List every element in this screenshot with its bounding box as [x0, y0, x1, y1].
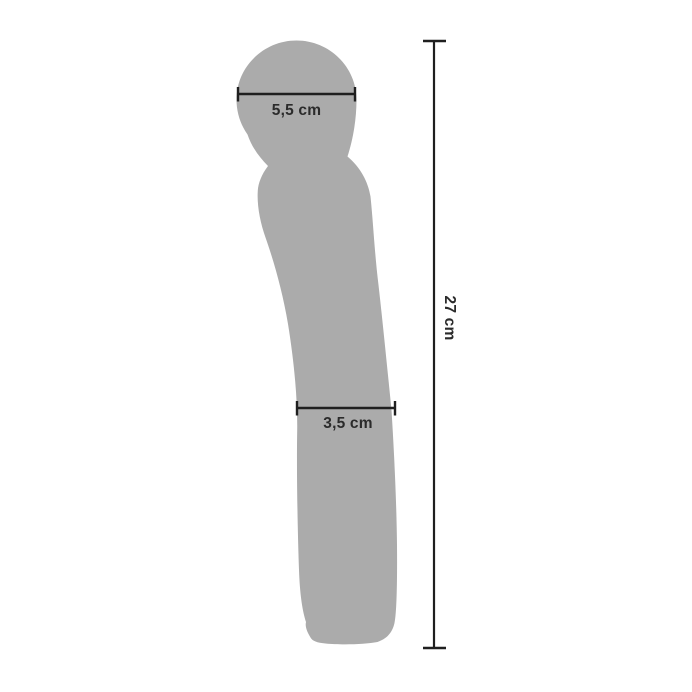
dimension-diagram: 5,5 cm 3,5 cm 27 cm — [0, 0, 692, 692]
product-silhouette-shape — [237, 41, 398, 645]
total-length-label: 27 cm — [441, 296, 458, 341]
head-width-label: 5,5 cm — [272, 102, 321, 119]
dimension-diagram-svg: 5,5 cm 3,5 cm 27 cm — [0, 0, 692, 692]
total-length-dimension: 27 cm — [423, 41, 458, 648]
shaft-width-label: 3,5 cm — [323, 415, 372, 432]
